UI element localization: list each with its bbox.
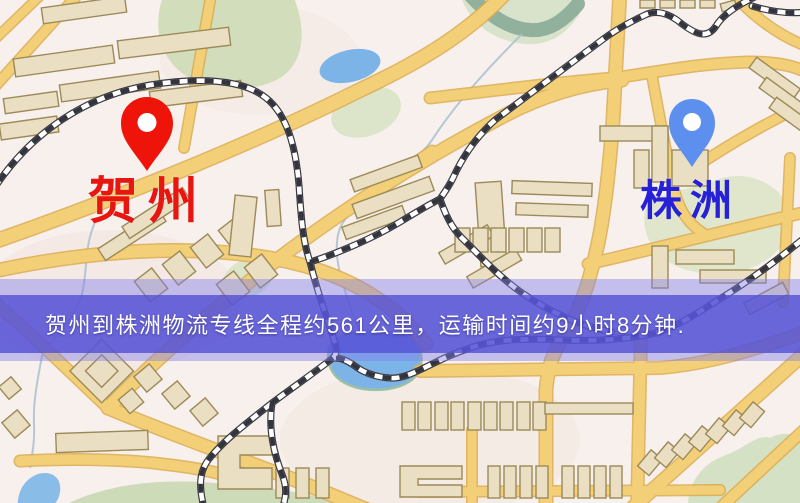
destination-label: 株洲 (640, 181, 740, 223)
route-info-text: 贺州到株洲物流专线全程约561公里，运输时间约9小时8分钟. (0, 308, 685, 340)
origin-label: 贺州 (88, 176, 208, 226)
route-map-screenshot: 贺州 株洲 贺州到株洲物流专线全程约561公里，运输时间约9小时8分钟. (0, 0, 800, 503)
map-image (0, 0, 800, 503)
route-info-banner: 贺州到株洲物流专线全程约561公里，运输时间约9小时8分钟. (0, 295, 800, 353)
origin-pin-hole (138, 113, 157, 132)
destination-pin-hole (683, 113, 701, 131)
